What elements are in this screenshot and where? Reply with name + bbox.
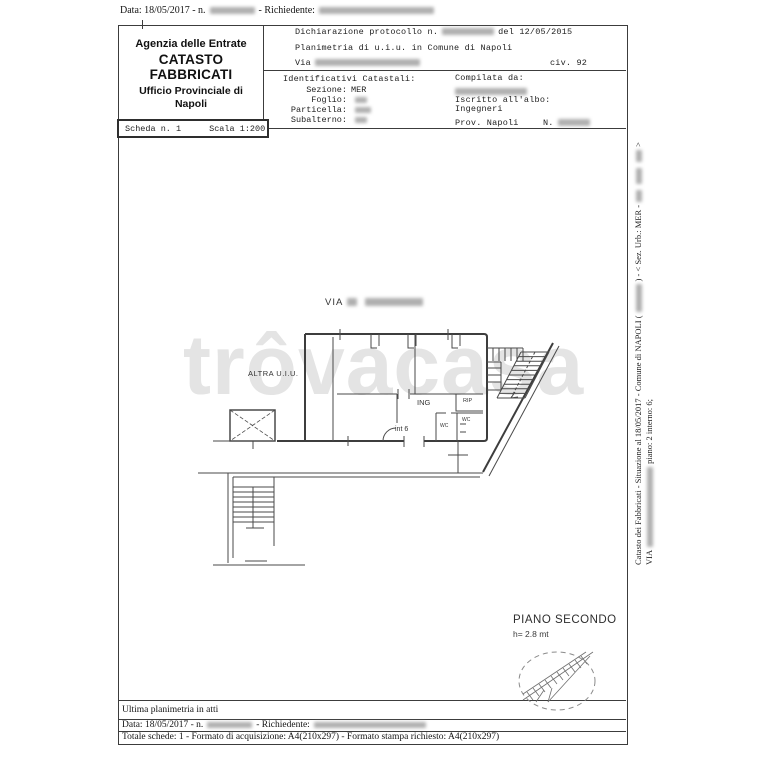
header-rule-2 — [263, 128, 626, 129]
particella-label: Particella: — [283, 105, 347, 115]
header-rule-1 — [263, 70, 626, 71]
redacted-text — [636, 168, 642, 184]
redacted-text — [636, 190, 642, 202]
sidebar-vertical-line-2: VIApiano: 2 interno: 6; — [644, 399, 654, 565]
external-stair — [487, 348, 549, 398]
foglio-label: Foglio: — [283, 95, 347, 105]
office-line: Ufficio Provinciale di — [118, 85, 264, 97]
footer-richiedente-label: - Richiedente: — [256, 720, 310, 730]
dichiarazione-row: Dichiarazione protocollo n.del 12/05/201… — [295, 27, 572, 37]
redacted-text — [347, 298, 357, 306]
compilata-label: Compilata da: — [455, 73, 524, 83]
sezione-value: MER — [351, 85, 366, 95]
light-shaft — [213, 410, 275, 449]
scheda-box: Scheda n. 1 Scala 1:200 — [117, 119, 269, 138]
footer-date-text: Data: 18/05/2017 - n. — [122, 720, 203, 730]
stairwell-corridor — [198, 441, 483, 565]
albo-number-row: N. — [543, 118, 594, 128]
signature-stamp — [515, 645, 607, 717]
identificativi-rows: Sezione:MER Foglio: Particella: Subalter… — [283, 85, 375, 125]
redacted-text — [647, 467, 653, 547]
stamp-scribble — [523, 652, 593, 702]
subalterno-row: Subalterno: — [283, 115, 375, 125]
date-text: Data: 18/05/2017 - n. — [120, 5, 206, 16]
street-name-label: VIA — [325, 297, 427, 308]
particella-row: Particella: — [283, 105, 375, 115]
planimetria-row: Planimetria di u.i.u. in Comune di Napol… — [295, 43, 512, 53]
identificativi-title: Identificativi Catastali: — [283, 74, 416, 84]
sidebar-text-1b: ) - < Sez. Urb.: MER - — [633, 205, 643, 282]
room-label-wc-1: WC — [440, 423, 448, 429]
agency-name: Agenzia delle Entrate — [118, 38, 264, 50]
totale-schede-row: Totale schede: 1 - Formato di acquisizio… — [122, 732, 499, 742]
redacted-text — [355, 97, 367, 103]
room-label-rip: RIP — [463, 398, 472, 404]
foglio-row: Foglio: — [283, 95, 375, 105]
document-date-line: Data: 18/05/2017 - n.- Richiedente: — [120, 5, 438, 16]
unit-number-label: int 6 — [395, 426, 408, 433]
redacted-text — [558, 119, 590, 126]
ultima-planimetria-label: Ultima planimetria in atti — [122, 705, 218, 715]
civ-number: civ. 92 — [550, 58, 587, 68]
agency-block: Agenzia delle Entrate CATASTO FABBRICATI… — [118, 38, 264, 110]
interior-walls — [333, 329, 559, 476]
sidebar-text-1a: Catasto dei Fabbricati - Situazione al 1… — [633, 315, 643, 565]
floor-title: PIANO SECONDO — [513, 614, 617, 626]
richiedente-label: - Richiedente: — [259, 5, 315, 16]
n-label: N. — [543, 118, 554, 128]
office-city: Napoli — [118, 98, 264, 110]
catasto-title: CATASTO FABBRICATI — [118, 52, 264, 82]
prov-label: Prov. Napoli — [455, 118, 519, 128]
floor-title-block: PIANO SECONDO h= 2.8 mt — [513, 614, 617, 639]
redacted-text — [636, 284, 642, 312]
dichiarazione-label: Dichiarazione protocollo n. — [295, 27, 438, 37]
via-row: Via — [295, 58, 424, 68]
redacted-text — [636, 150, 642, 162]
sidebar-text-2a: VIA — [644, 550, 654, 565]
redacted-text — [315, 59, 420, 66]
redacted-text — [442, 28, 494, 35]
room-label-wc-2: WC — [462, 417, 470, 423]
redacted-text — [319, 7, 434, 14]
sezione-label: Sezione: — [283, 85, 347, 95]
subalterno-label: Subalterno: — [283, 115, 347, 125]
sidebar-text-1c: > — [633, 142, 643, 147]
redacted-text — [210, 7, 255, 14]
sidebar-text-2b: piano: 2 interno: 6; — [644, 399, 654, 464]
room-label-ing: ING — [417, 398, 430, 407]
redacted-text — [207, 722, 252, 728]
via-label: Via — [295, 58, 311, 68]
scala-value: Scala 1:200 — [209, 124, 265, 134]
redacted-text — [355, 117, 367, 123]
floor-height: h= 2.8 mt — [513, 629, 617, 639]
redacted-text — [355, 107, 371, 113]
altra-uiu-label: ALTRA U.I.U. — [248, 369, 298, 378]
sezione-row: Sezione:MER — [283, 85, 375, 95]
floor-plan-drawing — [185, 290, 605, 600]
redacted-text — [314, 722, 426, 728]
footer-date-row: Data: 18/05/2017 - n.- Richiedente: — [122, 720, 430, 730]
redacted-text — [365, 298, 423, 306]
dichiarazione-date: del 12/05/2015 — [498, 27, 572, 37]
scheda-number: Scheda n. 1 — [125, 124, 181, 134]
street-label: VIA — [325, 297, 343, 308]
registration-tick — [142, 20, 143, 29]
sidebar-vertical-line-1: Catasto dei Fabbricati - Situazione al 1… — [633, 142, 643, 565]
albo-value: Ingegneri — [455, 104, 503, 114]
